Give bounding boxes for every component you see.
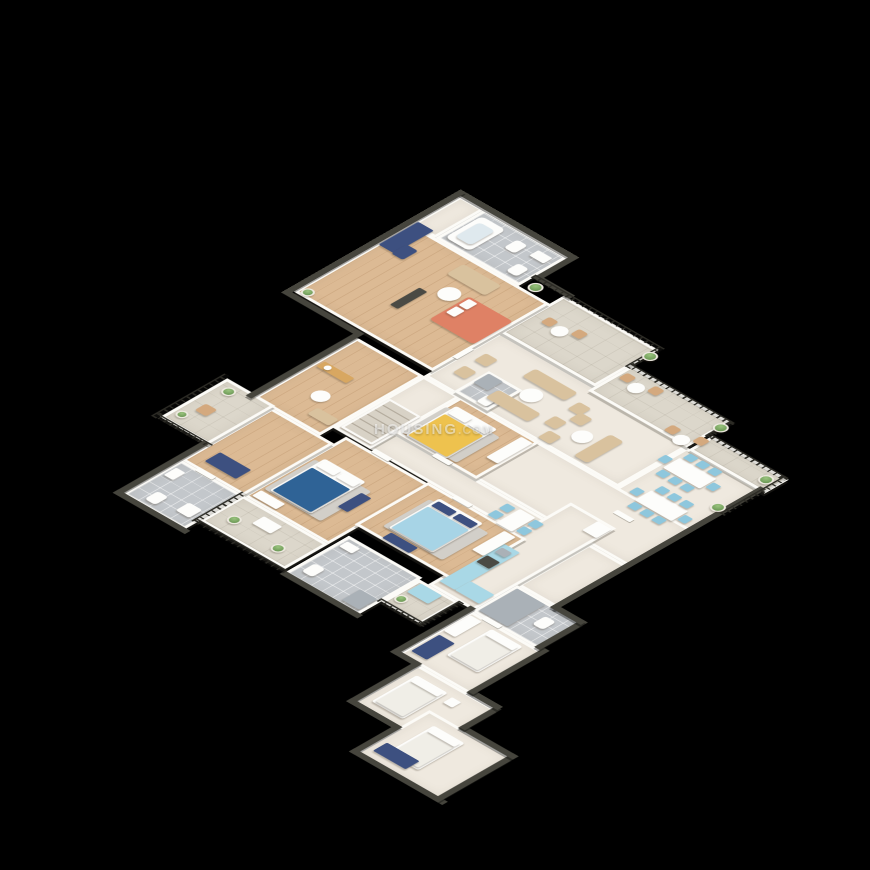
watermark-brand: HOUSING (374, 421, 458, 438)
floor-plan-3d (0, 196, 870, 800)
watermark: HOUSING.COM (374, 421, 493, 438)
floor-plan-screenshot: HOUSING.COM (0, 0, 870, 870)
watermark-suffix: .COM (458, 423, 493, 437)
